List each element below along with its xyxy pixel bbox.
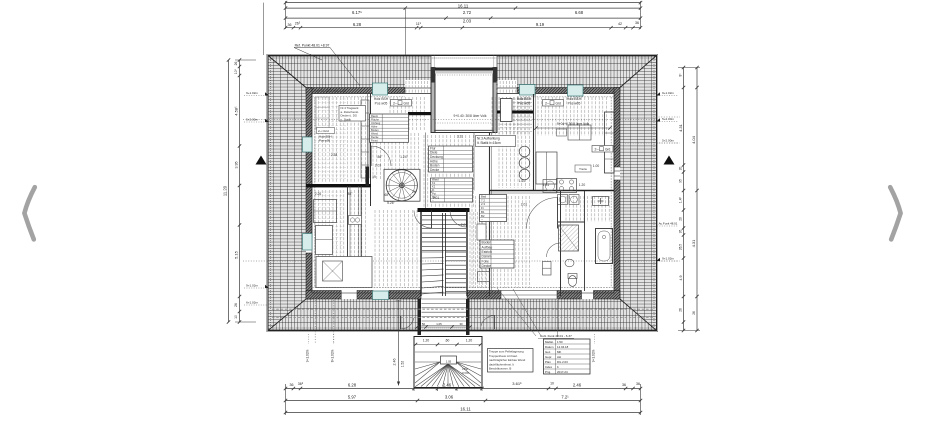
- svg-text:2.03: 2.03: [463, 18, 472, 23]
- svg-text:2.03: 2.03: [375, 164, 382, 168]
- svg-text:1.00: 1.00: [593, 164, 600, 168]
- svg-text:Gez.: Gez.: [545, 350, 551, 354]
- svg-text:2.46: 2.46: [443, 382, 452, 387]
- svg-text:Pos w05: Pos w05: [518, 102, 531, 106]
- svg-text:Beschläussnm. B: Beschläussnm. B: [489, 367, 511, 371]
- svg-text:1.81: 1.81: [543, 183, 550, 187]
- svg-text:Folie: Folie: [482, 259, 489, 263]
- svg-text:Wand: Wand: [371, 131, 378, 135]
- svg-text:n. Statik: n. Statik: [341, 117, 352, 121]
- svg-text:5.26°: 5.26°: [387, 201, 395, 205]
- svg-text:11⁵: 11⁵: [416, 22, 422, 26]
- svg-text:9+1.02m: 9+1.02m: [306, 349, 310, 362]
- svg-text:4.58⁵: 4.58⁵: [234, 106, 239, 116]
- svg-text:68°: 68°: [385, 193, 391, 197]
- svg-text:1.52: 1.52: [401, 361, 405, 368]
- svg-text:4.04: 4.04: [691, 135, 696, 144]
- svg-text:MK: MK: [557, 350, 561, 354]
- svg-text:2.26: 2.26: [315, 192, 322, 196]
- svg-text:Decke: Decke: [371, 135, 379, 139]
- svg-text:26.5: 26.5: [678, 244, 682, 250]
- svg-text:Decke: Decke: [482, 264, 492, 268]
- svg-text:36⁵: 36⁵: [298, 382, 304, 386]
- svg-text:Plan: Plan: [545, 360, 551, 364]
- svg-text:26: 26: [412, 190, 416, 194]
- svg-text:Estrich: Estrich: [482, 250, 492, 254]
- svg-text:6.17⁵: 6.17⁵: [352, 10, 362, 15]
- svg-text:2.46: 2.46: [573, 382, 582, 387]
- svg-text:3.31: 3.31: [457, 135, 464, 139]
- svg-text:16.11: 16.11: [458, 3, 469, 8]
- svg-text:2─: 2─: [545, 101, 550, 105]
- svg-text:Grd: Grd: [556, 101, 562, 105]
- svg-text:5+2.00m: 5+2.00m: [662, 139, 674, 143]
- svg-text:5+2.00m: 5+2.00m: [662, 117, 674, 121]
- svg-text:Nr.3 Aufkantung: Nr.3 Aufkantung: [477, 137, 500, 141]
- svg-text:10: 10: [234, 315, 238, 319]
- svg-text:86°: 86°: [378, 155, 384, 159]
- svg-text:6+1.02m: 6+1.02m: [246, 301, 258, 305]
- svg-text:3.06: 3.06: [445, 394, 454, 399]
- svg-text:Boden: Boden: [371, 128, 379, 132]
- svg-text:Holz BSH: Holz BSH: [517, 97, 532, 101]
- svg-text:5+2.00m: 5+2.00m: [246, 118, 258, 122]
- svg-text:Dämm: Dämm: [482, 255, 492, 259]
- svg-text:2017-24: 2017-24: [557, 370, 568, 374]
- svg-text:Proj.: Proj.: [545, 370, 551, 374]
- svg-text:95: 95: [678, 230, 682, 234]
- svg-text:2.01: 2.01: [433, 196, 440, 200]
- svg-text:Trenw: Trenw: [579, 167, 588, 171]
- svg-text:4.9: 4.9: [679, 276, 683, 281]
- svg-text:36: 36: [636, 382, 640, 386]
- svg-text:Au.Funk 48.01: Au.Funk 48.01: [659, 222, 678, 226]
- svg-text:Pos w05: Pos w05: [375, 102, 388, 106]
- svg-text:Pos w05: Pos w05: [568, 102, 581, 106]
- svg-text:1.10: 1.10: [519, 179, 526, 183]
- svg-text:3.95: 3.95: [235, 162, 239, 169]
- svg-text:5.15: 5.15: [234, 250, 239, 259]
- svg-text:12.04.18: 12.04.18: [557, 345, 569, 349]
- svg-text:4.31: 4.31: [691, 239, 696, 248]
- svg-text:26⁵: 26⁵: [295, 22, 301, 26]
- svg-text:6.28: 6.28: [353, 22, 362, 27]
- svg-text:Fl.: Fl.: [432, 188, 435, 192]
- svg-text:Fenst: Fenst: [371, 139, 378, 143]
- svg-text:Decke: Decke: [430, 168, 439, 172]
- svg-text:20: 20: [678, 217, 682, 221]
- svg-text:1.20: 1.20: [579, 183, 586, 187]
- svg-text:Put: Put: [432, 191, 436, 195]
- svg-text:88°: 88°: [348, 192, 354, 196]
- svg-text:2─□Grd: 2─□Grd: [318, 129, 329, 133]
- svg-text:.60: .60: [445, 339, 450, 343]
- svg-text:AH: AH: [557, 355, 561, 359]
- svg-text:9+1.02m: 9+1.02m: [662, 257, 674, 261]
- svg-text:Pos w05: Pos w05: [319, 139, 330, 143]
- svg-text:2.38: 2.38: [331, 153, 338, 157]
- svg-text:16.11: 16.11: [460, 407, 471, 412]
- svg-text:Aufbau: Aufbau: [482, 245, 493, 249]
- svg-text:Pos.12 18/30 bis 1.60: Pos.12 18/30 bis 1.60: [314, 89, 346, 93]
- svg-text:9+1.02m: 9+1.02m: [246, 91, 258, 95]
- svg-text:Deckung: Deckung: [430, 155, 443, 159]
- svg-text:9+1.02m: 9+1.02m: [246, 284, 258, 288]
- svg-text:2.01: 2.01: [521, 203, 528, 207]
- svg-text:Datum: Datum: [545, 345, 554, 349]
- svg-text:9+04+0.30/8 über Volk: 9+04+0.30/8 über Volk: [557, 122, 589, 126]
- svg-text:Boden: Boden: [482, 241, 492, 245]
- svg-text:Umfang: Umfang: [371, 121, 381, 125]
- svg-text:26: 26: [234, 62, 238, 66]
- svg-text:4.31: 4.31: [678, 123, 683, 132]
- svg-text:DG 2.03: DG 2.03: [557, 360, 568, 364]
- svg-text:2.46: 2.46: [393, 359, 397, 366]
- svg-text:Wand: Wand: [432, 178, 439, 182]
- svg-text:6: 6: [430, 190, 432, 194]
- svg-text:2─: 2─: [393, 101, 398, 105]
- svg-text:Raum: Raum: [371, 114, 379, 118]
- svg-text:1:50: 1:50: [557, 340, 563, 344]
- svg-text:Holz BSH: Holz BSH: [567, 97, 582, 101]
- svg-text:7.2¹: 7.2¹: [561, 394, 569, 399]
- svg-text:1.4⁵: 1.4⁵: [678, 196, 682, 203]
- svg-text:Gepr.: Gepr.: [545, 355, 552, 359]
- svg-text:Höhe: Höhe: [371, 124, 378, 128]
- svg-text:Auß. Funk 48.01 - 6.37: Auß. Funk 48.01 - 6.37: [540, 334, 572, 338]
- svg-text:1.20: 1.20: [466, 339, 473, 343]
- svg-text:9+1.02m: 9+1.02m: [592, 349, 596, 362]
- svg-text:10⁵: 10⁵: [234, 68, 238, 74]
- svg-text:10: 10: [550, 381, 554, 385]
- svg-text:9+1.02m: 9+1.02m: [662, 91, 674, 95]
- svg-text:1.24°: 1.24°: [400, 155, 408, 159]
- svg-text:2─: 2─: [595, 147, 600, 151]
- svg-text:1.20: 1.20: [423, 339, 430, 343]
- svg-text:5.97: 5.97: [348, 394, 357, 399]
- svg-text:3.61⁵: 3.61⁵: [512, 381, 522, 386]
- svg-text:9.19: 9.19: [536, 22, 545, 27]
- svg-text:11.20: 11.20: [223, 185, 228, 196]
- svg-text:--: --: [481, 218, 483, 222]
- svg-text:36: 36: [635, 21, 639, 25]
- svg-text:26: 26: [692, 311, 696, 315]
- svg-text:26: 26: [678, 308, 682, 312]
- svg-text:Maßst.: Maßst.: [545, 340, 554, 344]
- svg-text:36: 36: [290, 383, 294, 387]
- svg-text:Grd: Grd: [404, 101, 410, 105]
- svg-text:6.28: 6.28: [348, 382, 357, 387]
- svg-text:lt. Statik h=15cm: lt. Statik h=15cm: [477, 141, 501, 145]
- svg-text:19: 19: [372, 175, 376, 179]
- svg-text:2.72: 2.72: [463, 10, 472, 15]
- svg-text:6.68: 6.68: [575, 10, 584, 15]
- svg-text:8+1.02m: 8+1.02m: [331, 349, 335, 362]
- svg-text:1.05: 1.05: [446, 360, 452, 364]
- svg-text:20: 20: [678, 167, 682, 171]
- svg-text:36: 36: [288, 23, 292, 27]
- svg-text:Index: Index: [545, 365, 553, 369]
- svg-text:95: 95: [678, 179, 682, 183]
- svg-text:9+0.40: 30/8 über Volk: 9+0.40: 30/8 über Volk: [453, 114, 486, 118]
- svg-text:2.01: 2.01: [461, 223, 468, 227]
- svg-text:17/29: 17/29: [462, 371, 469, 375]
- svg-text:Ref. Punkt 48.01 +8.97: Ref. Punkt 48.01 +8.97: [295, 44, 330, 48]
- svg-text:Holz BSH: Holz BSH: [374, 97, 389, 101]
- svg-text:42: 42: [618, 22, 622, 26]
- svg-text:36: 36: [622, 383, 626, 387]
- svg-text:Grd: Grd: [605, 147, 611, 151]
- svg-text:26: 26: [234, 303, 238, 307]
- svg-text:Fläche: Fläche: [371, 117, 379, 121]
